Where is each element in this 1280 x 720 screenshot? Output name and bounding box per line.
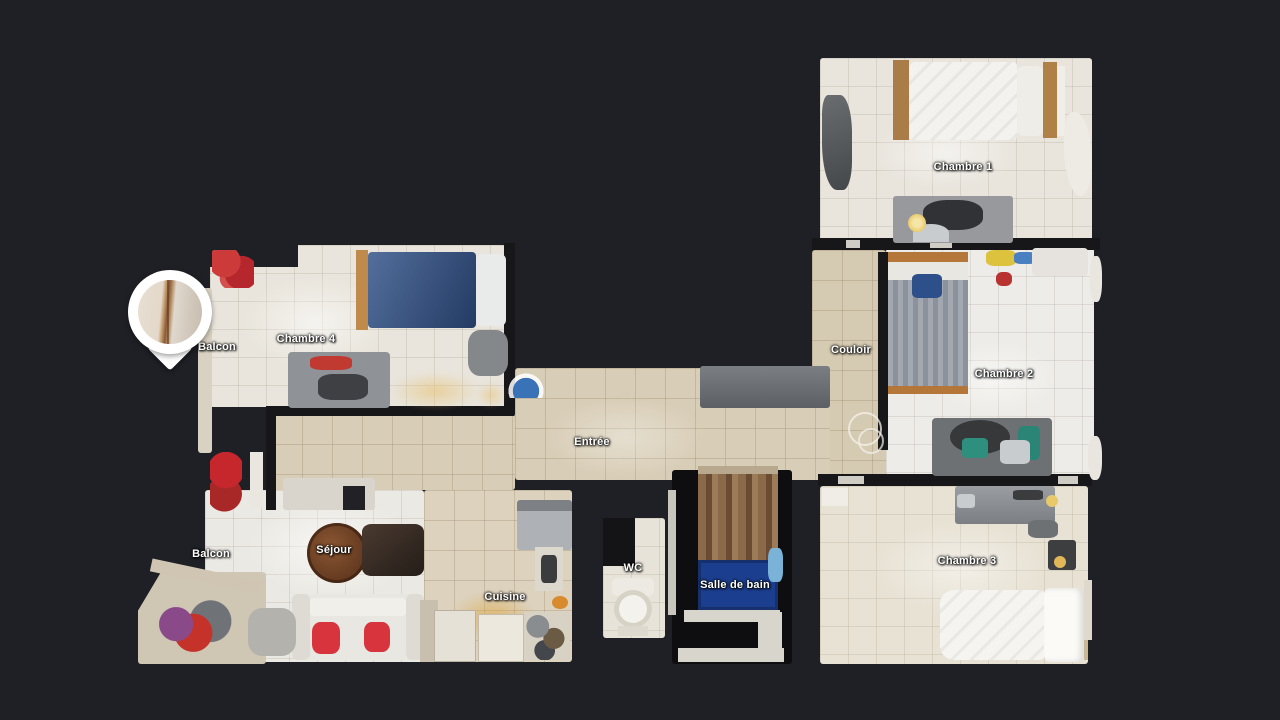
lamp (1046, 495, 1058, 507)
wall-bump (822, 488, 848, 506)
chair (468, 330, 508, 376)
wall-gap (838, 476, 864, 484)
pillow (476, 254, 506, 326)
wood-edge (698, 466, 778, 474)
chair (362, 524, 424, 576)
clutter (957, 494, 975, 508)
wall-gap (846, 240, 860, 248)
clutter (962, 438, 988, 458)
room-label-chambre-3: Chambre 3 (938, 555, 997, 567)
room-label-entree: Entrée (574, 436, 609, 448)
counter-clutter (524, 612, 570, 660)
lamp (1054, 556, 1066, 568)
wall-block (283, 478, 375, 510)
cabinet (478, 614, 524, 662)
clutter (1000, 440, 1030, 464)
wall-bump (1090, 256, 1102, 302)
desk-chair (318, 374, 368, 400)
clutter (1028, 520, 1058, 538)
floor-strip (758, 612, 782, 662)
shelf-clutter (966, 248, 1088, 288)
pin-photo-preview (138, 280, 202, 344)
desk (932, 418, 1052, 476)
door-slab (250, 452, 263, 508)
wall-gap (1058, 476, 1078, 484)
duvet (909, 62, 1017, 140)
duvet (940, 590, 1044, 660)
room-label-salle-de-bain: Salle de bain (700, 579, 770, 591)
desk-lamp-arm (1013, 490, 1043, 500)
cushion-red (364, 622, 390, 652)
cushion (912, 274, 942, 298)
bed-frame (888, 252, 968, 262)
cushion-red (312, 622, 340, 654)
toilet (608, 578, 658, 636)
toilet-seat (614, 590, 652, 628)
room-label-wc: WC (624, 562, 643, 574)
desk (955, 486, 1055, 524)
lamp (908, 214, 926, 232)
room-label-chambre-1: Chambre 1 (934, 161, 993, 173)
sofa-back (310, 598, 406, 616)
pillow (1017, 66, 1043, 136)
wall-edge (668, 490, 676, 615)
pillow (1044, 588, 1084, 662)
duvet-blue (368, 252, 476, 328)
room-label-chambre-4: Chambre 4 (277, 333, 336, 345)
bed-frame (893, 60, 909, 140)
toilet-base (618, 626, 648, 636)
room-label-cuisine: Cuisine (484, 591, 525, 603)
clutter (1032, 248, 1088, 276)
door-arc (858, 428, 884, 454)
desk (288, 352, 390, 408)
lamp-glow (390, 372, 480, 410)
bed-frame (1043, 62, 1057, 138)
clutter-red (210, 452, 242, 512)
wall-bump (1084, 580, 1092, 640)
counter-slot (541, 555, 557, 583)
bowl (552, 596, 568, 609)
wall-segment (266, 406, 276, 510)
wall-bump (1088, 436, 1102, 480)
counter (535, 547, 563, 591)
bed-frame (356, 250, 368, 330)
room-label-sejour: Séjour (316, 544, 351, 556)
cabinet (700, 366, 830, 408)
clutter-red (212, 250, 254, 288)
wall-slot (343, 486, 365, 510)
bed-chambre-1 (893, 60, 1065, 140)
chair (248, 608, 296, 656)
fridge (517, 500, 572, 550)
clutter (996, 272, 1012, 286)
room-label-couloir: Couloir (831, 344, 871, 356)
bed-chambre-3 (932, 586, 1088, 664)
clutter (822, 95, 852, 190)
lamp-glow (476, 382, 506, 408)
clutter (986, 250, 1016, 266)
scan-notch (603, 518, 635, 566)
pin-head (128, 270, 212, 354)
bed-frame (888, 386, 968, 394)
sofa (292, 594, 424, 660)
room-label-balcon-bas: Balcon (192, 548, 230, 560)
cabinet (434, 610, 476, 662)
light-glow (540, 395, 710, 480)
clutter (768, 548, 783, 582)
balcony-furniture (146, 598, 232, 656)
room-label-chambre-2: Chambre 2 (975, 368, 1034, 380)
bed-chambre-2 (888, 252, 968, 394)
clutter-red (310, 356, 352, 370)
nightstand (1048, 540, 1076, 570)
floorplan-canvas[interactable]: Chambre 1 Chambre 2 Chambre 3 Chambre 4 … (0, 0, 1280, 720)
bed-chambre-4 (356, 250, 506, 330)
photo-pin-marker[interactable] (128, 270, 212, 374)
clutter (506, 370, 546, 398)
shower-wood-floor (698, 466, 778, 562)
